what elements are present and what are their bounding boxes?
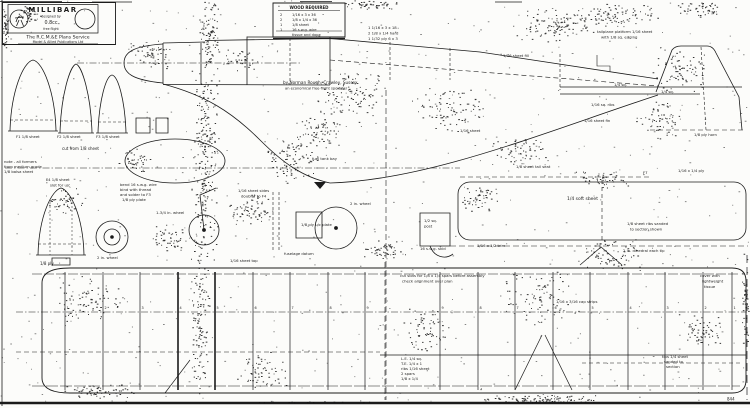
title-subline-2: free flight <box>43 27 59 31</box>
annotation: 1/4 sq. <box>614 82 627 87</box>
wing-ribs <box>65 272 732 390</box>
annotation: 1/16 sheet top <box>230 258 258 263</box>
rib-number: 8 <box>480 306 482 310</box>
materials-footer: tissue and dope <box>292 33 321 37</box>
dihedral-brace <box>165 335 572 393</box>
materials-header: WOOD REQUIRED <box>289 5 329 10</box>
former-f1 <box>10 60 56 131</box>
annotation: F4 1/8 sheet <box>46 177 70 182</box>
annotation: 1 1/32 ply 6 x 3 <box>368 36 398 41</box>
annotation: with 1/8 sq. edging <box>601 35 638 40</box>
annotation: 1/8 x 1/4 <box>401 376 418 381</box>
rib-number: 8 <box>330 306 332 310</box>
annotation: 1/8 ply horn <box>694 132 717 137</box>
annotation: 1/8 ply <box>40 261 54 266</box>
annotation: F3 1/8 sheet <box>96 134 120 139</box>
annotation: 1/8 sheet ribs sanded <box>627 221 669 226</box>
engine-size: 0.8cc <box>45 20 58 26</box>
annotation: 1/16 sheet <box>460 128 481 133</box>
rib-number: 2 <box>105 306 107 310</box>
annotation: 1/8 ply u/c plate <box>301 222 332 227</box>
annotation: 16 s.w.g. skid <box>420 246 446 251</box>
annotation: 1/16 sheet sides <box>238 188 269 193</box>
rib-number: 9 <box>442 306 444 310</box>
plan-title: MILLIBAR <box>28 6 77 14</box>
rib-number: 5 <box>217 306 219 310</box>
uc-wire <box>200 188 216 230</box>
annotation: tailplane platform 1/16 sheet <box>597 29 653 34</box>
annotation: 1/16 x 1/4 ply <box>678 168 705 173</box>
rib-number: 7 <box>517 306 519 310</box>
annotation: cut slots for 1/8 x 1/4 spars before ass… <box>400 273 485 278</box>
annotation: tissue <box>704 284 716 289</box>
logo-figure-icon <box>15 16 24 26</box>
annotations-layer: 1 1/16 x 3 x 182 1/8 x 1/4 hard1 1/32 pl… <box>4 25 724 381</box>
rib-number: 5 <box>592 306 594 310</box>
rib-number-labels: 123456789987654321 <box>67 306 736 310</box>
annotation: fuselage datum <box>284 251 314 256</box>
annotation: section <box>666 364 680 369</box>
rib-number: 6 <box>555 306 557 310</box>
dihedral-caret <box>580 247 622 265</box>
rear-bottom-line <box>330 95 658 183</box>
rib-number: 4 <box>630 306 632 310</box>
wing-plan <box>16 247 747 400</box>
former-f4 <box>38 188 84 255</box>
annotation: 1-3/4 in. wheel <box>156 210 184 215</box>
annotation: 2 in. dihedral each tip <box>623 248 665 253</box>
annotation: cover with <box>700 273 720 278</box>
sheet-border <box>0 0 750 406</box>
title-subline-1: designed by <box>41 15 61 19</box>
materials-table: WOOD REQUIRED 21/16 x 3 x 3621/8 x 1/4 x… <box>273 3 345 39</box>
rib-number: 2 <box>705 306 707 310</box>
annotation: post <box>424 224 433 229</box>
wing-root-section <box>125 139 225 183</box>
annotation: lightweight <box>702 279 724 284</box>
annotation: 1/2 sq. <box>424 218 437 223</box>
rib-number: 3 <box>667 306 669 310</box>
wing-outline <box>42 268 746 393</box>
plan-number: 844 <box>727 397 735 402</box>
rib-number: 1 <box>734 306 736 310</box>
annotation: fuel tank bay <box>312 156 338 161</box>
annotation: 2 in. wheel <box>97 255 118 260</box>
annotation: 1/16 sheet fin <box>584 118 611 123</box>
materials-qty: 1 <box>280 28 282 32</box>
rib-number: 6 <box>255 306 257 310</box>
materials-size: 1/8 x 1/4 x 36 <box>292 18 318 22</box>
annotation: F1 1/8 sheet <box>16 134 40 139</box>
rib-number: 9 <box>367 306 369 310</box>
annotation: 1/4 soft sheet <box>567 196 598 202</box>
ply-plate-template <box>52 258 70 265</box>
annotation: 2 in. wheel <box>350 201 371 206</box>
control-horn <box>314 182 326 189</box>
rib-number: 3 <box>142 306 144 310</box>
rib-number: 7 <box>292 306 294 310</box>
annotation: 1 1/16 x 3 x 18 <box>368 25 397 30</box>
stamp-circle <box>75 9 95 29</box>
annotation: 1/16 sq. ribs <box>591 102 615 107</box>
annotation: doubler to F4 <box>241 194 267 199</box>
noise-specks <box>0 1 749 402</box>
plan-sheet: MILLIBAR designed by 0.8cc free flight T… <box>0 0 750 408</box>
materials-qty: 1 <box>280 23 282 27</box>
annotation: 1/16 sheet fill <box>503 53 529 58</box>
annotation: cut from 1/8 sheet <box>62 146 99 151</box>
annotation: 1/8 balsa sheet <box>4 169 34 174</box>
annotation: F2 1/8 sheet <box>57 134 81 139</box>
rudder-hinge <box>701 47 706 130</box>
materials-size: 1/16 x 3 x 36 <box>292 13 316 17</box>
noise-specks <box>2 1 750 403</box>
annotation: 2 1/8 x 1/4 hard <box>368 31 399 36</box>
annotation: 1/4 sq. <box>661 89 674 94</box>
scan-noise-layer <box>0 1 749 403</box>
plans-service-address: Model & Allied Publications Ltd <box>33 40 84 44</box>
former-f3 <box>98 75 126 133</box>
nose-cowl <box>124 44 163 83</box>
annotation: 1/16 x 3/16 cap strips <box>556 299 597 304</box>
plan-drawing: MILLIBAR designed by 0.8cc free flight T… <box>0 0 750 408</box>
rib-number: 4 <box>180 306 182 310</box>
annotation: by Norman Rough, Crawley, Sussex <box>283 80 358 85</box>
tailplane-plan <box>450 180 748 249</box>
longeron-template <box>136 118 150 133</box>
annotation: slot for u/c <box>50 183 70 188</box>
annotation: to section shown <box>630 227 663 232</box>
materials-size: 1/8 sheet <box>292 23 309 27</box>
materials-qty: 2 <box>280 18 282 22</box>
materials-size: 16 s.w.g. wire <box>292 28 317 32</box>
materials-qty: 2 <box>280 13 282 17</box>
annotation: check alignment over plan <box>402 279 453 284</box>
annotation: 1/16 x 1/2 trim <box>477 243 506 248</box>
longeron-template <box>156 118 168 133</box>
former-f2 <box>60 64 92 133</box>
fin-outline <box>656 46 742 130</box>
annotation: 1/8 ply plate <box>122 197 147 202</box>
